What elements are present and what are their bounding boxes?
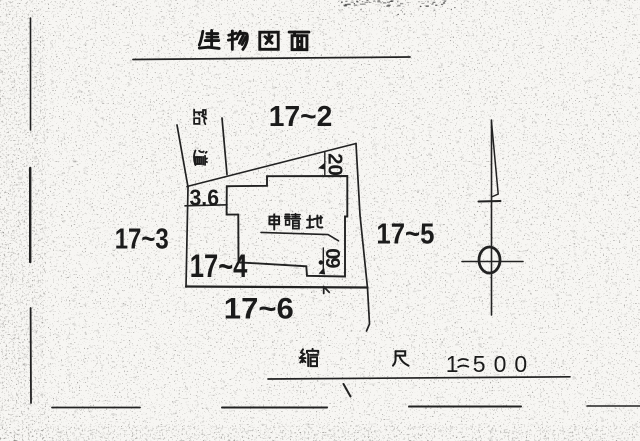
svg-text:17~3: 17~3 xyxy=(115,224,169,256)
svg-text:17~2: 17~2 xyxy=(269,101,333,133)
svg-text:3.6: 3.6 xyxy=(190,185,220,211)
svg-text:20: 20 xyxy=(323,153,346,176)
svg-text:17~4: 17~4 xyxy=(190,248,248,284)
svg-text:17~6: 17~6 xyxy=(224,292,294,325)
svg-text:1: 1 xyxy=(446,351,459,377)
svg-text:17~5: 17~5 xyxy=(376,218,434,250)
svg-text:09: 09 xyxy=(321,248,343,268)
svg-text:500: 500 xyxy=(473,351,535,377)
